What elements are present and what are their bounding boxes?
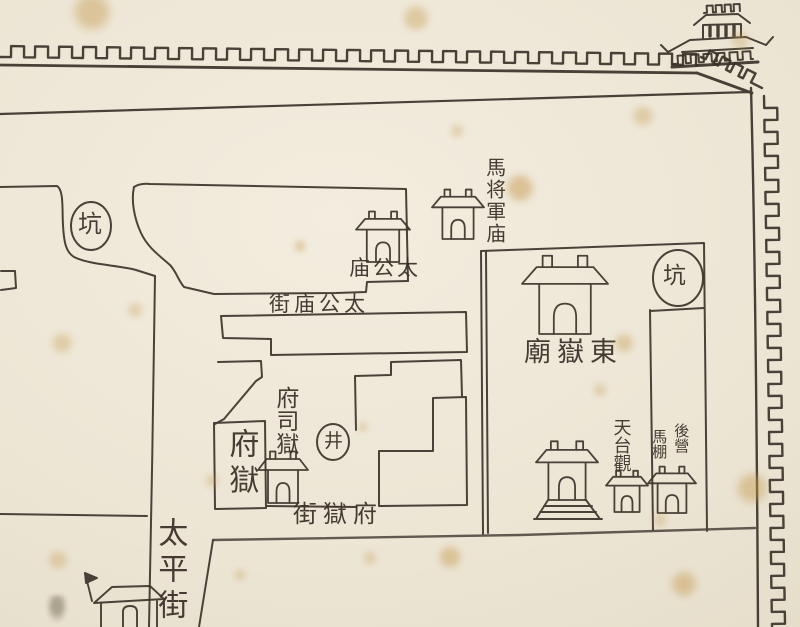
taigong-temple-label: 庙公太 bbox=[349, 257, 421, 280]
tiantai-monastery-label: 天台觀 bbox=[611, 418, 630, 482]
east-pit-shelf-line bbox=[650, 308, 704, 311]
wall-inner-base-line bbox=[0, 92, 750, 114]
taigong-temple-icon bbox=[356, 212, 410, 262]
well-label: 井 bbox=[324, 431, 343, 452]
pit-label-west: 坑 bbox=[78, 212, 102, 238]
taiping-street-label: 太平街 bbox=[153, 517, 185, 627]
historical-city-map: 坑 坑 庙公太 街庙公太 馬将軍庙 廟嶽東 府司獄 府獄 井 街獄府 太平街 天… bbox=[0, 0, 800, 627]
prefecture-jail-office-label: 府司獄 bbox=[272, 386, 297, 466]
corner-gate-tower-icon bbox=[661, 4, 773, 67]
tower-windows bbox=[710, 25, 734, 36]
jail-office-outline bbox=[215, 361, 262, 424]
banner-flag bbox=[85, 573, 97, 583]
general-temple-label: 馬将軍庙 bbox=[483, 157, 505, 269]
wall-crenellation-right bbox=[764, 96, 785, 627]
wall-right-inner-line bbox=[751, 88, 758, 627]
bottom-house-door bbox=[123, 606, 137, 627]
west-edge-notch bbox=[1, 271, 16, 290]
east-column-west-edge-1 bbox=[481, 251, 483, 534]
city-blocks bbox=[0, 184, 755, 627]
tower-ridge-battlement bbox=[704, 4, 740, 13]
taigong-temple-street-label: 街庙公太 bbox=[269, 293, 369, 316]
central-stepped-block bbox=[355, 360, 462, 430]
map-circles bbox=[71, 202, 703, 460]
east-column-west-edge-2 bbox=[486, 252, 488, 533]
prefecture-jail-label: 府獄 bbox=[224, 428, 256, 508]
prefecture-jail-street-label: 街獄府 bbox=[293, 502, 383, 528]
pit-label-east: 坑 bbox=[663, 264, 686, 289]
map-linework bbox=[0, 0, 800, 627]
dongyue-temple-label: 廟嶽東 bbox=[524, 338, 623, 367]
street-south-bar bbox=[221, 312, 467, 355]
taiping-street-east-edge bbox=[199, 540, 213, 627]
rear-camp-label: 後營 bbox=[673, 423, 689, 473]
southwest-block-top-edge bbox=[0, 514, 147, 516]
central-lower-block bbox=[379, 397, 467, 506]
terrace-temple-stairs bbox=[534, 500, 602, 519]
general-temple-icon bbox=[432, 190, 484, 239]
faint-partial-character bbox=[46, 595, 68, 623]
wall-crenellation-top bbox=[0, 46, 697, 65]
horse-shed-label: 馬棚 bbox=[651, 429, 667, 475]
terrace-temple-icon bbox=[536, 441, 598, 500]
east-column-mid-divider bbox=[650, 310, 653, 530]
wall-crenellation-corner bbox=[701, 50, 762, 88]
wall-top-line bbox=[0, 65, 697, 73]
city-wall-icon bbox=[0, 46, 785, 627]
dongyue-temple-icon bbox=[522, 256, 608, 334]
